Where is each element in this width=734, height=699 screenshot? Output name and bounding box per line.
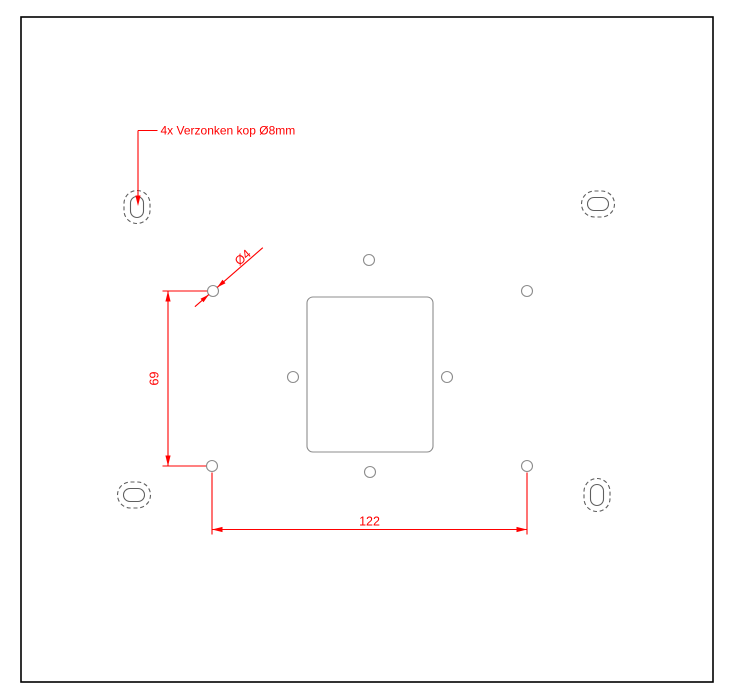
mounting-hole-top-center — [364, 255, 375, 266]
dimension-69-arrowhead-bottom — [165, 456, 170, 467]
dimension-69-arrowhead-top — [165, 291, 170, 302]
slot-bottom-right-hole — [591, 485, 604, 506]
slot-top-right — [582, 191, 615, 217]
dimension-vertical-69: 69 — [148, 291, 208, 466]
dimension-122-value: 122 — [359, 515, 380, 529]
annotation-callout: 4x Verzonken kop Ø8mm — [135, 124, 295, 207]
dimension-122-arrowhead-left — [212, 527, 223, 532]
drawing-page: 4x Verzonken kop Ø8mm 69 122 — [0, 0, 734, 699]
mounting-hole-left-middle — [288, 372, 299, 383]
slot-bottom-right — [584, 479, 610, 512]
technical-drawing-canvas: 4x Verzonken kop Ø8mm 69 122 — [0, 0, 734, 699]
mounting-hole-right-middle — [442, 372, 453, 383]
slot-top-right-countersink — [582, 191, 615, 217]
slot-top-left — [124, 191, 150, 224]
plate-border-group — [21, 17, 713, 682]
annotation-leader-arrowhead — [135, 196, 140, 207]
corner-slots-group — [118, 191, 615, 512]
slot-bottom-right-countersink — [584, 479, 610, 512]
dimension-69-value: 69 — [148, 372, 162, 386]
slot-top-right-hole — [588, 198, 609, 211]
slot-bottom-left-countersink — [118, 482, 151, 508]
dimension-122-arrowhead-right — [517, 527, 528, 532]
annotation-label: 4x Verzonken kop Ø8mm — [161, 124, 296, 138]
plate-outline — [21, 17, 713, 682]
mounting-hole-pattern-top-right — [522, 286, 533, 297]
diameter-callout: Ø4 — [195, 247, 263, 307]
mounting-hole-pattern-bottom-left — [207, 461, 218, 472]
mounting-hole-pattern-bottom-right — [522, 461, 533, 472]
mounting-hole-bottom-center — [365, 467, 376, 478]
dimension-horizontal-122: 122 — [212, 473, 527, 535]
plate-geometry-group — [207, 255, 533, 478]
slot-bottom-left — [118, 482, 151, 508]
dimension-layer: 4x Verzonken kop Ø8mm 69 122 — [135, 124, 527, 535]
diameter-callout-label: Ø4 — [232, 247, 254, 269]
center-cutout — [307, 297, 433, 452]
mounting-hole-pattern-top-left — [208, 286, 219, 297]
slot-top-left-countersink — [124, 191, 150, 224]
slot-bottom-left-hole — [124, 489, 145, 502]
